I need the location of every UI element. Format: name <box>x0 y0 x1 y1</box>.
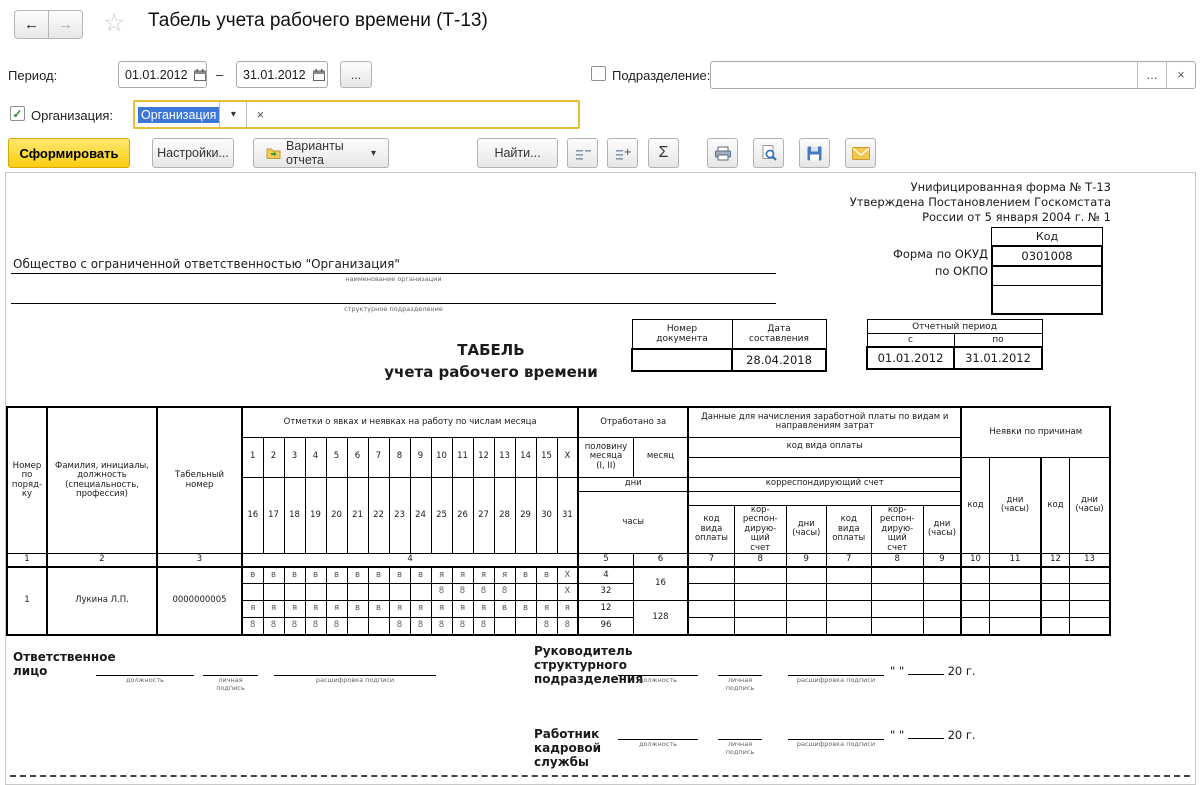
date-line <box>908 727 944 739</box>
empty-cell <box>688 567 734 584</box>
absence-days-header: дни (часы) <box>989 457 1041 554</box>
year-suffix: г. <box>966 664 976 678</box>
day-hours: 8 <box>326 618 347 635</box>
column-number: 4 <box>242 554 578 567</box>
day-hours <box>389 584 410 601</box>
day-header: 12 <box>473 437 494 477</box>
signature-line <box>718 662 762 676</box>
day-mark: в <box>284 567 305 584</box>
sum-button[interactable]: Σ <box>648 138 679 168</box>
department-label: Подразделение: <box>612 68 710 83</box>
day-header: 2 <box>263 437 284 477</box>
hours-month-cell: 128 <box>633 601 688 635</box>
empty-cell <box>923 618 961 635</box>
form-note: Унифицированная форма № Т-13 Утверждена … <box>850 180 1111 225</box>
signature-field: личная подпись <box>718 726 762 756</box>
column-number: 3 <box>157 554 242 567</box>
empty-cell <box>1069 567 1110 584</box>
period-from-field[interactable]: 01.01.2012 <box>118 61 207 88</box>
collapse-groups-icon: − <box>574 146 591 161</box>
calendar-icon[interactable] <box>312 62 327 87</box>
day-mark: я <box>242 601 263 618</box>
settings-button[interactable]: Настройки... <box>152 138 234 168</box>
day-mark: я <box>305 601 326 618</box>
day-hours: 8 <box>263 618 284 635</box>
print-button[interactable] <box>707 138 738 168</box>
row-number-cell: 1 <box>7 567 47 635</box>
year-prefix: 20 <box>948 664 963 678</box>
column-number: 13 <box>1069 554 1110 567</box>
empty-cell <box>688 584 734 601</box>
day-mark: в <box>368 567 389 584</box>
empty-cell <box>989 584 1041 601</box>
day-header: 20 <box>326 477 347 554</box>
calendar-icon[interactable] <box>194 62 206 87</box>
signature-line <box>788 662 884 676</box>
position-caption: должность <box>618 741 698 749</box>
position-caption: должность <box>96 677 194 685</box>
col-number-header: Номер по поряд- ку <box>7 407 47 554</box>
empty-cell <box>786 584 826 601</box>
empty-cell <box>989 567 1041 584</box>
chevron-down-icon: ▾ <box>371 148 376 159</box>
subdivision-caption: структурное подразделение <box>11 305 776 313</box>
day-mark: в <box>368 601 389 618</box>
favorite-star-icon[interactable]: ☆ <box>103 10 125 37</box>
report-period-from: 01.01.2012 <box>867 347 954 369</box>
signature-line <box>618 726 698 740</box>
hours-half2-cell: 96 <box>578 618 633 635</box>
okpo-value-box <box>991 267 1103 315</box>
day-hours <box>494 618 515 635</box>
day-mark: я <box>431 567 452 584</box>
date-field: " " 20 г. <box>890 727 976 742</box>
day-header: 1 <box>242 437 263 477</box>
column-number: 9 <box>786 554 826 567</box>
day-header: 29 <box>515 477 536 554</box>
day-hours <box>326 584 347 601</box>
empty-cell <box>871 567 923 584</box>
day-mark: в <box>410 567 431 584</box>
day-hours: 8 <box>305 618 326 635</box>
pay-code-band: код вида оплаты <box>688 437 961 457</box>
days-hours-col-header: дни (часы) <box>786 505 826 554</box>
marks-group-header: Отметки о явках и неявках на работу по ч… <box>242 407 578 437</box>
empty-cell <box>1041 567 1069 584</box>
absence-code-header: код <box>961 457 989 554</box>
department-field[interactable]: ... × <box>710 61 1196 89</box>
report-variants-label: Варианты отчета <box>286 139 366 167</box>
svg-text:+: + <box>624 147 632 158</box>
days-month-cell: 16 <box>633 567 688 601</box>
back-button[interactable]: ← <box>14 10 49 39</box>
organization-value: Организация <box>138 107 219 123</box>
day-header: 11 <box>452 437 473 477</box>
empty-cell <box>989 601 1041 618</box>
chevron-down-icon[interactable]: ▾ <box>219 102 246 127</box>
report-variants-button[interactable]: Варианты отчета ▾ <box>253 138 389 168</box>
days-band: дни <box>578 477 688 491</box>
empty-cell <box>826 584 871 601</box>
expand-groups-icon: + <box>614 146 631 161</box>
day-hours <box>263 584 284 601</box>
empty-cell <box>734 584 786 601</box>
column-number: 11 <box>989 554 1041 567</box>
day-hours: 8 <box>494 584 515 601</box>
day-header: 5 <box>326 437 347 477</box>
day-hours <box>515 618 536 635</box>
column-number: 7 <box>688 554 734 567</box>
column-number: 7 <box>826 554 871 567</box>
empty-cell <box>871 584 923 601</box>
nav-buttons: ← → <box>14 10 83 39</box>
pay-group-header: Данные для начисления заработной платы п… <box>688 407 961 437</box>
day-header: 31 <box>557 477 578 554</box>
organization-label: Организация: <box>31 108 113 123</box>
day-mark: я <box>536 601 557 618</box>
empty-cell <box>871 601 923 618</box>
day-mark: я <box>452 601 473 618</box>
empty-cell <box>786 567 826 584</box>
period-dash: – <box>216 67 223 82</box>
form-note-line: Утверждена Постановлением Госкомстата <box>850 195 1111 210</box>
day-header: 25 <box>431 477 452 554</box>
day-header: 7 <box>368 437 389 477</box>
organization-field[interactable]: Организация ▾ × <box>133 100 580 129</box>
days-hours-col-header: дни (часы) <box>923 505 961 554</box>
day-header: 19 <box>305 477 326 554</box>
day-hours <box>368 584 389 601</box>
day-header: 24 <box>410 477 431 554</box>
absence-group-header: Неявки по причинам <box>961 407 1110 457</box>
hours-half1-cell: 32 <box>578 584 633 601</box>
col-name-header: Фамилия, инициалы, должность (специально… <box>47 407 157 554</box>
column-number: 9 <box>923 554 961 567</box>
svg-text:−: − <box>584 146 591 157</box>
date-quotes: " " <box>890 728 904 742</box>
empty-cell <box>826 618 871 635</box>
day-mark: я <box>284 601 305 618</box>
department-more-button[interactable]: ... <box>1137 62 1166 88</box>
day-hours: 8 <box>389 618 410 635</box>
page-break-dashed-line <box>10 775 1190 777</box>
day-mark: я <box>452 567 473 584</box>
day-header: 23 <box>389 477 410 554</box>
name-caption: расшифровка подписи <box>788 741 884 749</box>
report-title: ТАБЕЛЬ учета рабочего времени <box>291 339 691 383</box>
day-header: 18 <box>284 477 305 554</box>
sigma-icon: Σ <box>659 144 669 162</box>
period-to-field[interactable]: 31.01.2012 <box>236 61 328 88</box>
day-hours: 8 <box>473 618 494 635</box>
empty-cell <box>1069 584 1110 601</box>
year-suffix: г. <box>966 728 976 742</box>
mail-icon <box>852 147 870 160</box>
day-header: 28 <box>494 477 515 554</box>
hr-worker-label: Работник кадровой службы <box>534 727 601 769</box>
signature-caption: личная подпись <box>718 677 762 692</box>
day-mark: я <box>473 567 494 584</box>
collapse-groups-button[interactable]: − <box>567 138 598 168</box>
day-header: X <box>557 437 578 477</box>
day-hours <box>347 618 368 635</box>
date-field: " " 20 г. <box>890 663 976 678</box>
day-header: 3 <box>284 437 305 477</box>
position-field: должность <box>618 726 698 749</box>
preview-button[interactable] <box>753 138 784 168</box>
empty-cell <box>871 618 923 635</box>
day-header: 21 <box>347 477 368 554</box>
empty-cell <box>961 567 989 584</box>
printer-icon <box>714 146 732 161</box>
pay-code-col-header: код вида оплаты <box>826 505 871 554</box>
empty-cell <box>826 567 871 584</box>
day-hours <box>347 584 368 601</box>
day-hours: 8 <box>473 584 494 601</box>
empty-cell <box>1041 601 1069 618</box>
report-area: Унифицированная форма № Т-13 Утверждена … <box>5 172 1196 785</box>
generate-button[interactable]: Сформировать <box>8 138 130 168</box>
absence-code-header: код <box>1041 457 1069 554</box>
signature-line <box>718 726 762 740</box>
organization-checkbox[interactable]: ✓ <box>10 106 25 121</box>
day-mark: я <box>326 601 347 618</box>
column-number: 12 <box>1041 554 1069 567</box>
signature-line <box>203 662 258 676</box>
month-header: месяц <box>633 437 688 477</box>
signature-field: личная подпись <box>718 662 762 692</box>
empty-cell <box>688 618 734 635</box>
corr-empty-band <box>688 491 961 505</box>
empty-cell <box>961 618 989 635</box>
days-half2-cell: 12 <box>578 601 633 618</box>
day-header: 22 <box>368 477 389 554</box>
day-hours: 8 <box>452 584 473 601</box>
organization-clear-icon[interactable]: × <box>246 102 273 127</box>
org-name-caption: наименование организации <box>11 275 776 283</box>
pay-code-empty-band <box>688 457 961 477</box>
day-hours <box>242 584 263 601</box>
report-title-line2: учета рабочего времени <box>291 361 691 383</box>
pay-code-col-header: код вида оплаты <box>688 505 734 554</box>
column-number: 8 <box>734 554 786 567</box>
day-mark: я <box>263 601 284 618</box>
empty-cell <box>734 618 786 635</box>
day-header: 4 <box>305 437 326 477</box>
day-mark: в <box>242 567 263 584</box>
position-field: должность <box>618 662 698 685</box>
organization-name-text: Общество с ограниченной ответственностью… <box>13 257 400 271</box>
day-header: 26 <box>452 477 473 554</box>
day-mark: в <box>263 567 284 584</box>
day-hours: 8 <box>557 618 578 635</box>
day-header: 10 <box>431 437 452 477</box>
absence-days-header: дни (часы) <box>1069 457 1110 554</box>
day-mark: я <box>494 567 515 584</box>
day-mark: я <box>557 601 578 618</box>
table-row: 1 Лукина Л.П. 0000000005 в в в в в в в в… <box>7 567 1110 584</box>
day-header: 27 <box>473 477 494 554</box>
okpo-label: по ОКПО <box>935 264 988 278</box>
day-header: 6 <box>347 437 368 477</box>
find-button[interactable]: Найти... <box>477 138 558 168</box>
day-hours <box>515 584 536 601</box>
day-mark: в <box>536 567 557 584</box>
empty-cell <box>734 601 786 618</box>
empty-cell <box>961 601 989 618</box>
day-hours <box>368 618 389 635</box>
empty-cell <box>1041 618 1069 635</box>
day-header: 17 <box>263 477 284 554</box>
day-hours: X <box>557 584 578 601</box>
column-number: 6 <box>633 554 688 567</box>
empty-cell <box>734 567 786 584</box>
empty-cell <box>923 567 961 584</box>
save-icon <box>807 146 822 161</box>
expand-groups-button[interactable]: + <box>607 138 638 168</box>
day-mark: в <box>326 567 347 584</box>
signature-caption: личная подпись <box>718 741 762 756</box>
timesheet-table: Номер по поряд- ку Фамилия, инициалы, до… <box>6 406 1111 636</box>
day-header: 13 <box>494 437 515 477</box>
year-prefix: 20 <box>948 728 963 742</box>
employee-name-cell: Лукина Л.П. <box>47 567 157 635</box>
day-header: 16 <box>242 477 263 554</box>
column-number: 8 <box>871 554 923 567</box>
day-mark: я <box>410 601 431 618</box>
period-more-button[interactable]: ... <box>340 61 372 88</box>
name-field: расшифровка подписи <box>788 662 884 685</box>
corr-col-header: кор- респон- дирую- щий счет <box>871 505 923 554</box>
hours-band: часы <box>578 491 688 554</box>
signature-line <box>788 726 884 740</box>
column-number: 2 <box>47 554 157 567</box>
doc-date-header: Дата составления <box>732 320 826 349</box>
position-caption: должность <box>618 677 698 685</box>
column-number: 5 <box>578 554 633 567</box>
empty-cell <box>1069 601 1110 618</box>
signature-line <box>618 662 698 676</box>
day-mark: в <box>347 567 368 584</box>
name-caption: расшифровка подписи <box>788 677 884 685</box>
form-note-line: Унифицированная форма № Т-13 <box>850 180 1111 195</box>
back-arrow-icon: ← <box>24 16 39 33</box>
day-mark: X <box>557 567 578 584</box>
department-checkbox[interactable] <box>591 66 606 81</box>
code-box-header: Код <box>991 227 1103 246</box>
name-caption: расшифровка подписи <box>274 677 436 685</box>
doc-date-value: 28.04.2018 <box>732 349 826 371</box>
day-hours <box>410 584 431 601</box>
day-header: 8 <box>389 437 410 477</box>
col-tabnumber-header: Табельный номер <box>157 407 242 554</box>
period-label: Период: <box>8 68 57 83</box>
column-number-row: 1 2 3 4 5 6 7 8 9 7 8 9 10 11 12 13 <box>7 554 1110 567</box>
date-line <box>908 663 944 675</box>
day-mark: в <box>347 601 368 618</box>
okud-label: Форма по ОКУД <box>893 247 988 261</box>
day-hours: 8 <box>410 618 431 635</box>
day-header: 9 <box>410 437 431 477</box>
column-number: 10 <box>961 554 989 567</box>
day-mark: я <box>431 601 452 618</box>
signature-line <box>274 662 436 676</box>
period-from-header: с <box>867 334 954 347</box>
day-mark: я <box>389 601 410 618</box>
period-from-value: 01.01.2012 <box>119 68 194 82</box>
report-period-table: Отчетный период с по 01.01.2012 31.01.20… <box>866 319 1043 370</box>
forward-arrow-icon: → <box>58 16 73 33</box>
day-header: 30 <box>536 477 557 554</box>
days-half1-cell: 4 <box>578 567 633 584</box>
okud-value: 0301008 <box>991 246 1103 267</box>
column-number: 1 <box>7 554 47 567</box>
day-hours: 8 <box>284 618 305 635</box>
day-mark: в <box>389 567 410 584</box>
report-period-header: Отчетный период <box>867 320 1042 334</box>
subdivision-line <box>11 303 776 304</box>
day-mark: в <box>305 567 326 584</box>
empty-cell <box>989 618 1041 635</box>
empty-cell <box>961 584 989 601</box>
form-note-line: России от 5 января 2004 г. № 1 <box>850 210 1111 225</box>
department-clear-icon[interactable]: × <box>1166 62 1195 88</box>
empty-cell <box>1041 584 1069 601</box>
day-hours: 8 <box>242 618 263 635</box>
report-title-line1: ТАБЕЛЬ <box>291 339 691 361</box>
period-to-value: 31.01.2012 <box>237 68 312 82</box>
day-mark: я <box>473 601 494 618</box>
report-period-to: 31.01.2012 <box>954 347 1042 369</box>
page-title: Табель учета рабочего времени (Т-13) <box>148 10 488 32</box>
position-field: должность <box>96 662 194 685</box>
save-button[interactable] <box>799 138 830 168</box>
empty-cell <box>688 601 734 618</box>
org-name-line <box>11 273 776 274</box>
empty-cell <box>826 601 871 618</box>
name-field: расшифровка подписи <box>274 662 436 685</box>
signature-line <box>96 662 194 676</box>
day-header: 14 <box>515 437 536 477</box>
period-to-header: по <box>954 334 1042 347</box>
day-mark: в <box>515 567 536 584</box>
name-field: расшифровка подписи <box>788 726 884 749</box>
folder-icon <box>266 147 281 159</box>
day-hours <box>284 584 305 601</box>
day-hours: 8 <box>431 618 452 635</box>
empty-cell <box>923 601 961 618</box>
day-mark: в <box>515 601 536 618</box>
signature-field: личная подпись <box>203 662 258 692</box>
day-hours <box>536 584 557 601</box>
forward-button[interactable]: → <box>49 10 83 39</box>
corr-col-header: кор- респон- дирую- щий счет <box>734 505 786 554</box>
day-hours: 8 <box>452 618 473 635</box>
code-box: Код 0301008 <box>991 227 1103 315</box>
empty-cell <box>923 584 961 601</box>
mail-button[interactable] <box>845 138 876 168</box>
empty-cell <box>786 618 826 635</box>
day-hours: 8 <box>431 584 452 601</box>
corr-band: корреспондирующий счет <box>688 477 961 491</box>
date-quotes: " " <box>890 664 904 678</box>
day-mark: в <box>494 601 515 618</box>
signature-caption: личная подпись <box>203 677 258 692</box>
empty-cell <box>786 601 826 618</box>
day-hours: 8 <box>536 618 557 635</box>
tab-number-cell: 0000000005 <box>157 567 242 635</box>
half-month-header: половину месяца (I, II) <box>578 437 633 477</box>
